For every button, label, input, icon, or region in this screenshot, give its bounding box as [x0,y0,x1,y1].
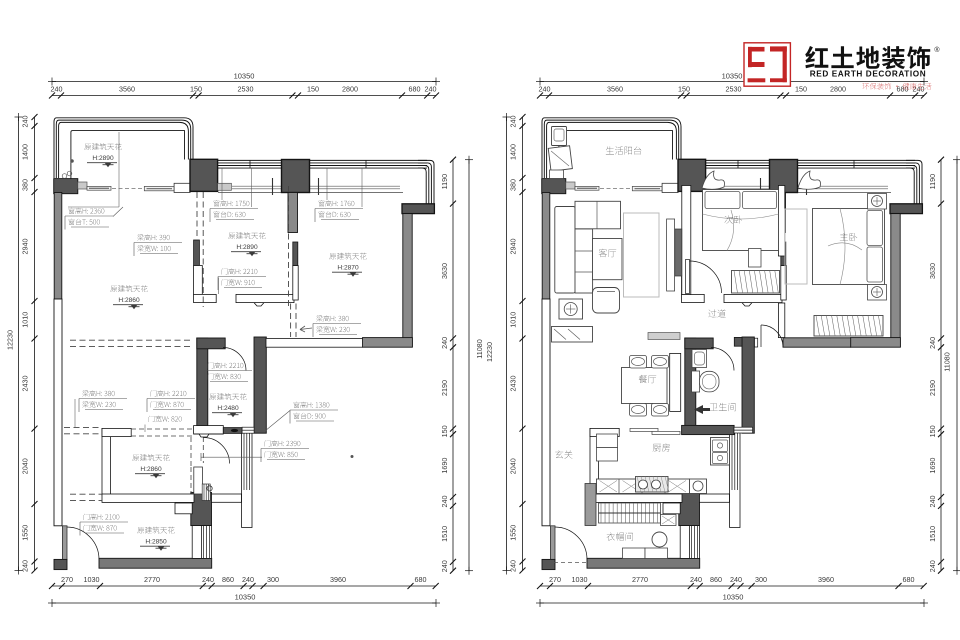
svg-text:H:2860: H:2860 [140,466,162,473]
svg-text:H:2480: H:2480 [217,405,239,412]
svg-text:H:2860: H:2860 [118,297,140,304]
svg-text:H:2890: H:2890 [92,155,114,162]
svg-text:12230: 12230 [6,330,15,350]
svg-text:H:2850: H:2850 [145,538,167,545]
svg-text:H:2890: H:2890 [236,244,258,251]
svg-text:11080: 11080 [943,352,952,371]
svg-text:12230: 12230 [485,342,494,362]
svg-text:11080: 11080 [475,339,484,358]
svg-text:®: ® [934,46,940,54]
svg-text:H:2870: H:2870 [337,264,359,271]
svg-text:RED EARTH DECORATION: RED EARTH DECORATION [810,70,926,79]
